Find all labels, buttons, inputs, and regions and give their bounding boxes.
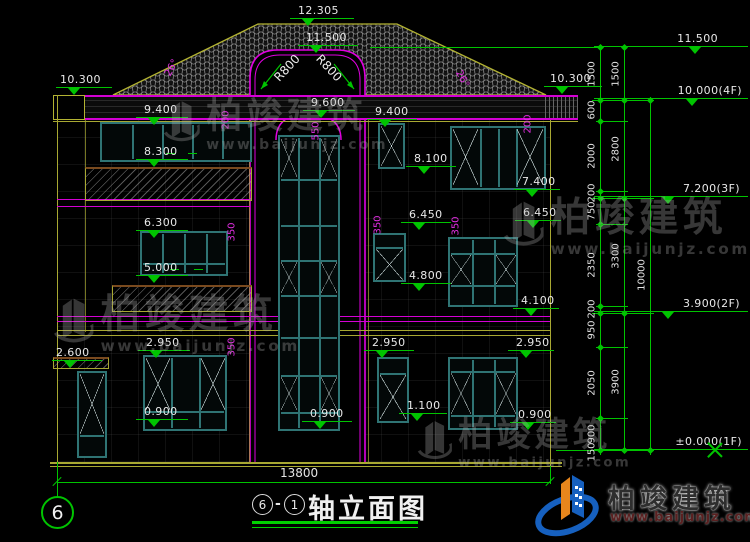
slide-arrow — [194, 269, 203, 270]
casement-x-pane — [281, 262, 297, 293]
mullion — [132, 125, 134, 159]
ground-line-a — [50, 462, 562, 464]
elevation-label: 10.300 — [60, 73, 101, 86]
dim-label-magenta: 350 — [227, 337, 238, 356]
window-3f-wide — [448, 237, 518, 307]
window-1f-wide — [448, 357, 518, 430]
elevation-label: 12.305 — [298, 4, 339, 17]
chain-line-total — [650, 97, 651, 455]
ground-level-cross — [706, 441, 724, 459]
floor-band-3f-b — [57, 206, 250, 207]
elevation-label: 7.200(3F) — [683, 182, 740, 195]
elevation-label: 7.400 — [522, 175, 556, 188]
elevation-label: 8.300 — [144, 145, 178, 158]
eave-right-endcap — [545, 97, 578, 118]
rail — [451, 285, 515, 287]
elevation-label: 2.600 — [56, 346, 90, 359]
casement-x-pane — [281, 139, 297, 177]
wall-left — [57, 95, 58, 466]
elevation-label: 9.600 — [311, 96, 345, 109]
dim-label-magenta: 550 — [311, 121, 322, 140]
mullion — [498, 129, 500, 187]
dim-label: 10000 — [637, 259, 648, 291]
elevation-label: 2.950 — [146, 336, 180, 349]
casement-x-pane — [381, 126, 402, 166]
dim-label: 2350 — [587, 252, 598, 277]
elevation-label: 4.800 — [409, 269, 443, 282]
elevation-label: 6.300 — [144, 216, 178, 229]
elevation-label: 8.100 — [414, 152, 448, 165]
elevation-label: 11.500 — [677, 32, 718, 45]
cad-elevation-drawing: 1500 600 2000 200 750 2350 200 950 2050 … — [0, 0, 750, 542]
elevation-label: 4.100 — [521, 294, 555, 307]
casement-x-pane — [80, 374, 104, 434]
dim-label: 2050 — [587, 370, 598, 395]
dim-label: 950 — [587, 320, 598, 339]
dim-label: 1500 — [611, 61, 622, 86]
brand-logo-icon — [533, 470, 607, 540]
elevation-label: 9.400 — [144, 103, 178, 116]
window-4f-small — [378, 123, 405, 169]
title-underline-thick — [252, 521, 418, 524]
dim-label-magenta: 350 — [373, 215, 384, 234]
title-circle-b: 1 — [284, 494, 305, 515]
chain-connector — [370, 47, 600, 48]
dim-label: 2800 — [611, 136, 622, 161]
rail — [281, 295, 337, 297]
casement-x-pane — [321, 139, 337, 177]
mullion — [472, 240, 474, 304]
dim-label: 3900 — [611, 369, 622, 394]
elevation-label: 9.400 — [375, 105, 409, 118]
elevation-label: 2.950 — [372, 336, 406, 349]
elevation-label: 10.000(4F) — [678, 84, 742, 97]
elevation-label: 6.450 — [523, 206, 557, 219]
casement-x-pane — [453, 129, 478, 185]
mullion — [222, 125, 224, 159]
casement-x-pane — [451, 373, 471, 414]
casement-x-pane — [496, 255, 516, 284]
casement-x-pane — [376, 249, 403, 280]
chain-connector — [556, 450, 654, 451]
dim-label: 600 — [587, 100, 598, 119]
casement-x-pane — [201, 358, 225, 410]
elevation-label: 0.900 — [310, 407, 344, 420]
dim-label: 3300 — [611, 243, 622, 268]
dim-label-magenta: 350 — [451, 216, 462, 235]
elevation-label: 0.900 — [518, 408, 552, 421]
window-1f-far-left — [77, 371, 107, 458]
wall-corner-c — [368, 120, 369, 462]
wall-corner-a — [85, 120, 86, 332]
dim-label: 750 — [587, 201, 598, 220]
dim-label-magenta: 200 — [523, 114, 534, 133]
elevation-label: 5.000 — [144, 261, 178, 274]
elevation-label: 2.950 — [516, 336, 550, 349]
title-dash: - — [275, 496, 281, 512]
rail — [281, 225, 337, 227]
casement-x-pane — [321, 377, 337, 410]
slide-arrow — [188, 153, 197, 154]
casement-x-pane — [281, 377, 297, 410]
elevation-label: 3.900(2F) — [683, 297, 740, 310]
balcony-rail-band-upper — [85, 167, 252, 201]
overall-dim-line — [57, 482, 550, 483]
dim-label: 2000 — [587, 143, 598, 168]
elevation-label: 11.500 — [306, 31, 347, 44]
chain-line-outer — [600, 45, 601, 455]
elevation-label: 0.900 — [144, 405, 178, 418]
axis-bubble: 6 — [41, 496, 74, 529]
rail — [281, 179, 337, 181]
stair-window-tower — [278, 135, 340, 431]
balcony-rail-band-lower — [112, 285, 252, 312]
brand-url: www.baijunjz.com — [610, 510, 750, 525]
dim-label-magenta: 200 — [221, 110, 232, 129]
mullion — [206, 234, 208, 273]
elevation-label: 1.100 — [407, 399, 441, 412]
title-underline-thin — [252, 527, 418, 528]
elevation-label: 6.450 — [409, 208, 443, 221]
mullion — [480, 129, 482, 187]
rail — [80, 435, 104, 437]
overall-width-label: 13800 — [280, 466, 318, 480]
casement-x-pane — [321, 262, 337, 293]
rail — [451, 415, 515, 417]
elevation-label: 10.300 — [550, 72, 591, 85]
title-circle-a: 6 — [252, 494, 273, 515]
rail — [281, 337, 337, 339]
chain-line-mid — [624, 45, 625, 450]
dim-label-magenta: 350 — [227, 222, 238, 241]
mullion — [298, 138, 300, 428]
axis-line — [57, 462, 58, 497]
casement-x-pane — [146, 358, 170, 410]
casement-x-pane — [451, 255, 471, 284]
